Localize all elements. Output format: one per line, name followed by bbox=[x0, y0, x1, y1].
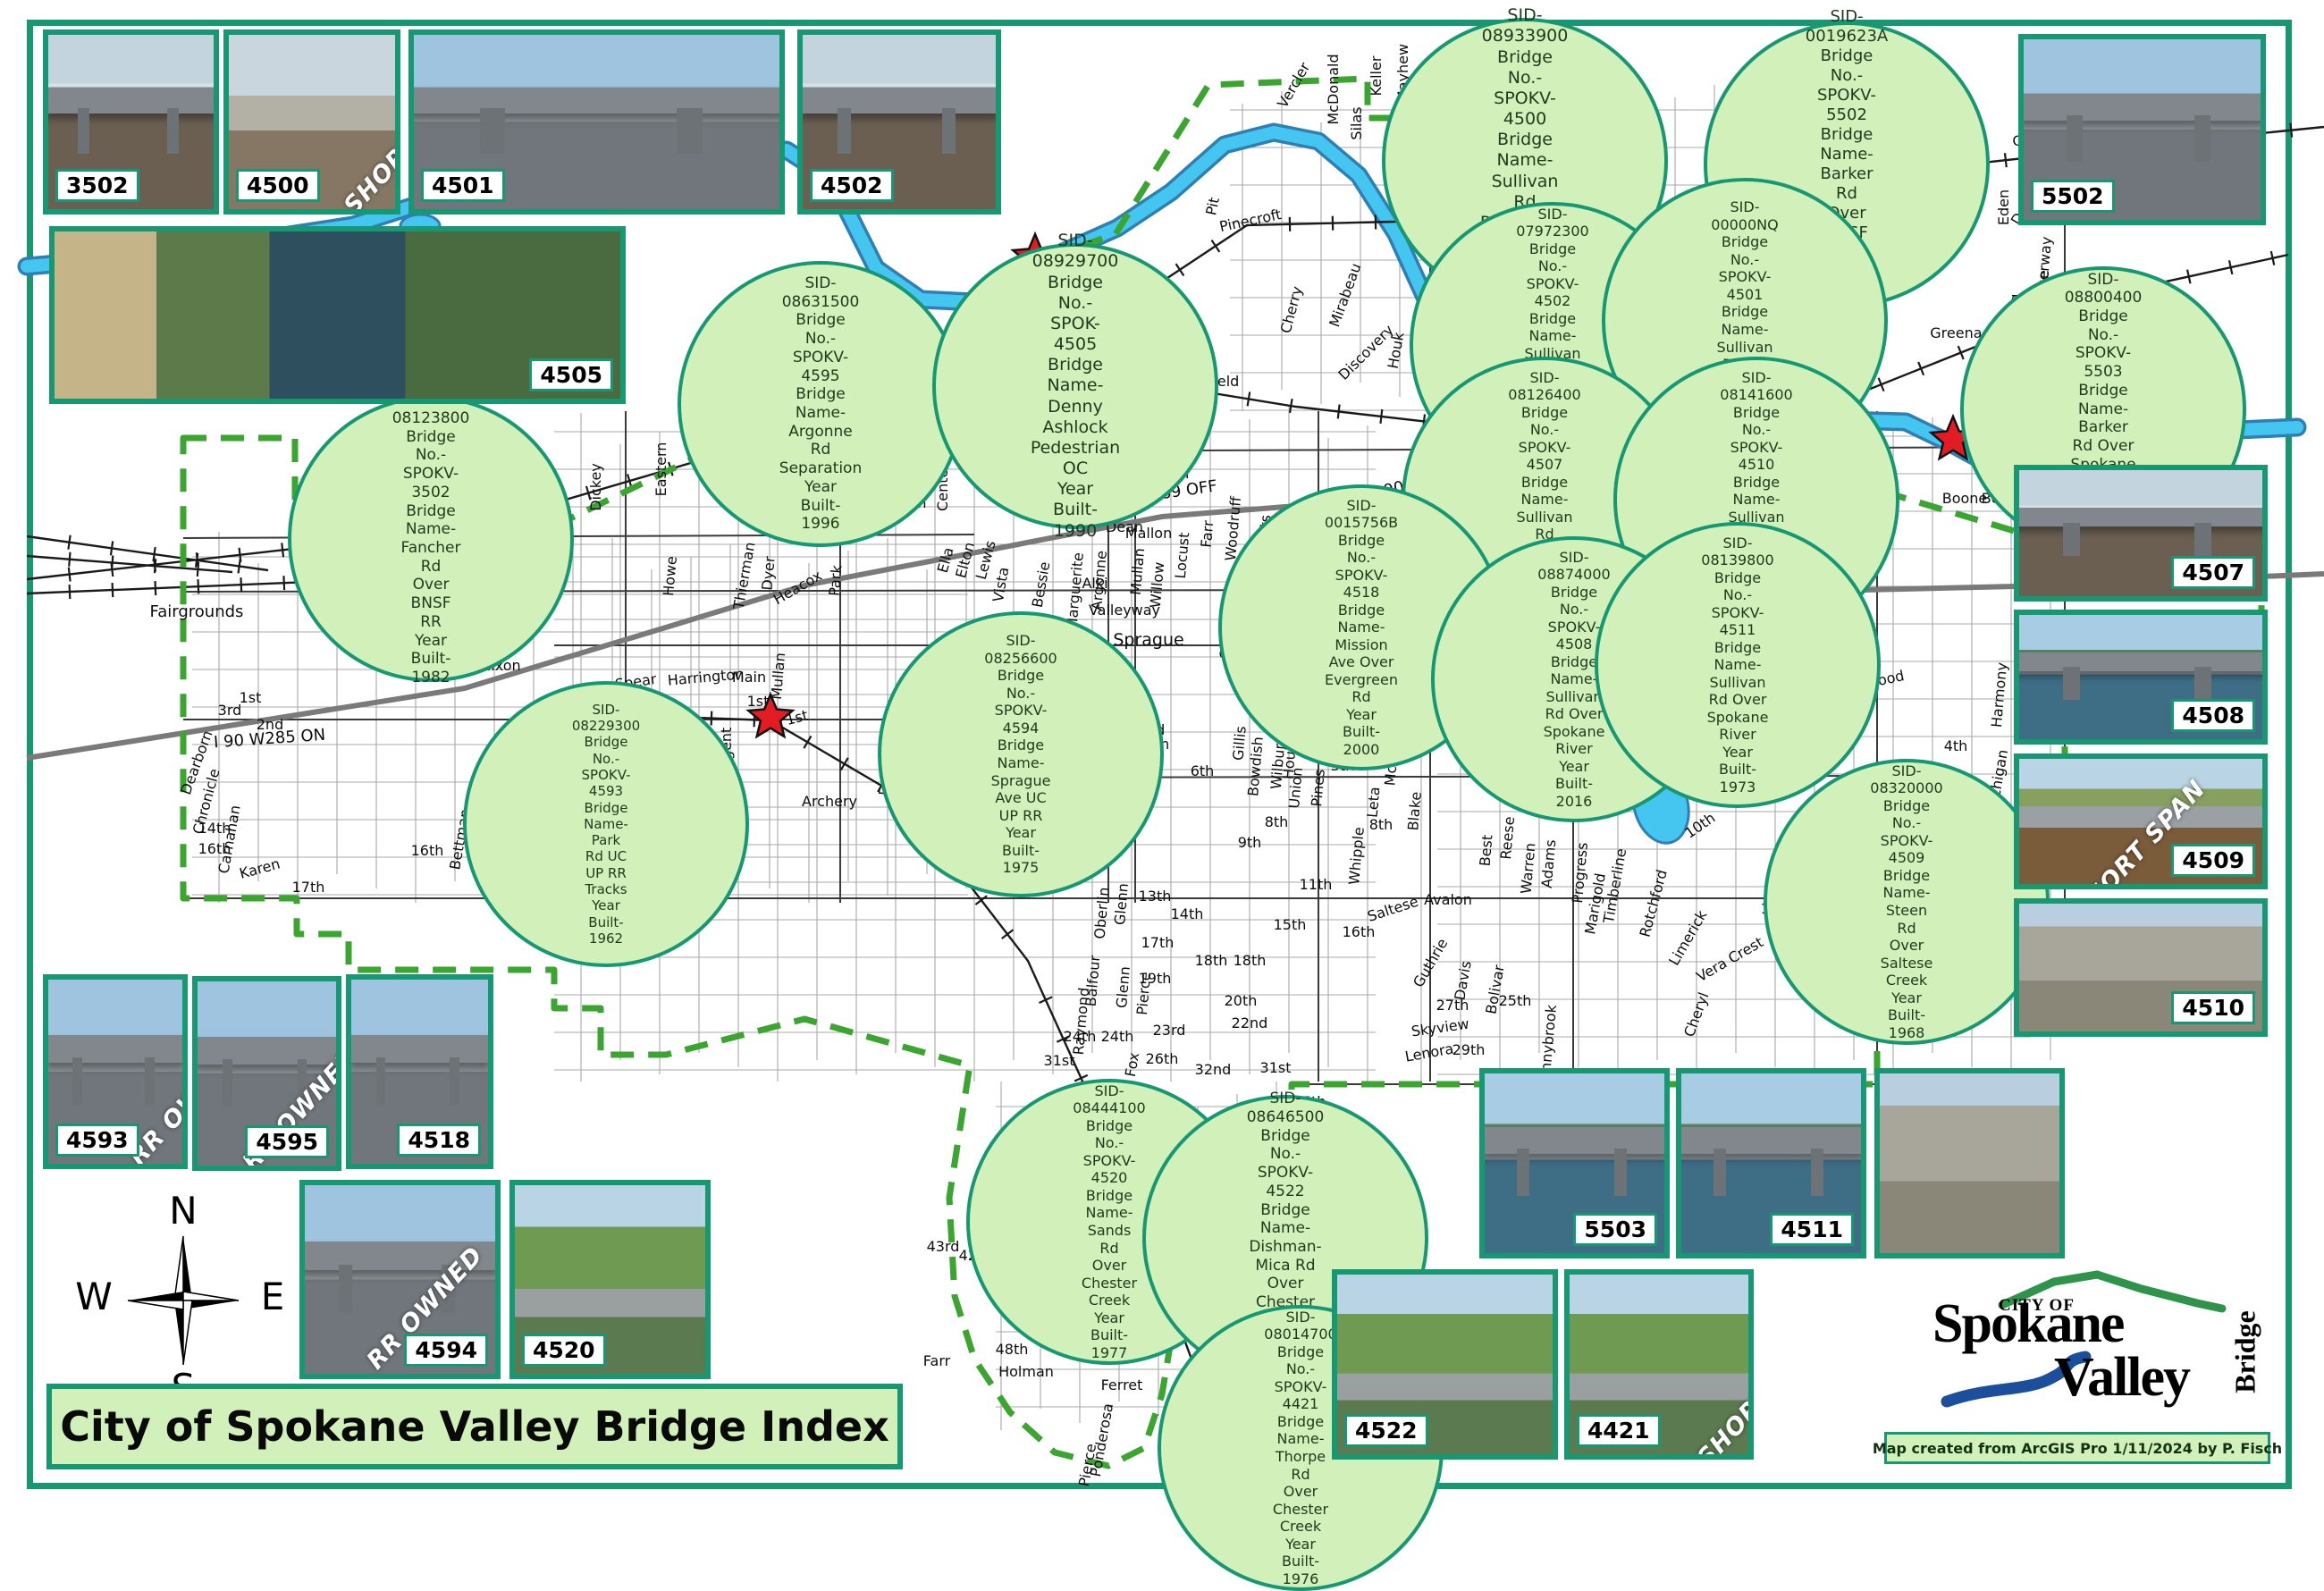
photo-number-label: 4505 bbox=[529, 358, 613, 391]
bridge-pier-graphic bbox=[2194, 667, 2211, 699]
callout-year: Year Built- 1990 bbox=[1053, 479, 1098, 542]
photo-number-label: 4509 bbox=[2171, 844, 2255, 877]
map-credit: Map created from ArcGIS Pro 1/11/2024 by… bbox=[1873, 1440, 2282, 1457]
bridge-pier-graphic bbox=[1811, 1149, 1823, 1195]
callout-sid: SID-08126400 bbox=[1508, 369, 1580, 404]
street-label: Dyer bbox=[758, 555, 778, 591]
photo-number-label: 5502 bbox=[2031, 180, 2115, 213]
street-label: 24th bbox=[1101, 1028, 1134, 1045]
callout-sid: SID-08229300 bbox=[572, 702, 640, 735]
callout-no-prefix: Bridge No.- bbox=[796, 311, 845, 348]
bridge-pier-graphic bbox=[1714, 1149, 1726, 1195]
bridge-span-graphic bbox=[799, 88, 1000, 114]
bridge-photo-4509: SHORT SPAN4509 bbox=[2014, 753, 2268, 889]
photo-number-label: 4518 bbox=[397, 1124, 481, 1157]
bridge-callout-spokv-4509: SID-08320000Bridge No.-SPOKV-4509Bridge … bbox=[1764, 759, 2050, 1045]
street-label: 18th bbox=[1234, 952, 1267, 969]
street-label: Avalon bbox=[1424, 891, 1472, 908]
street-label: Whipple bbox=[1345, 826, 1368, 885]
bridge-pier-graphic bbox=[72, 1057, 82, 1106]
photo-number-label: 4502 bbox=[810, 169, 894, 202]
callout-name: Bridge Name- Steen Rd Over Saltese Creek bbox=[1881, 867, 1933, 989]
street-label: Wilbur bbox=[1267, 743, 1288, 790]
bridge-photo-4507: 4507 bbox=[2014, 465, 2268, 602]
street-label: 14th bbox=[198, 820, 232, 837]
street-label: Boone bbox=[1942, 490, 1988, 507]
logo-valley: Valley bbox=[2054, 1346, 2189, 1410]
bridge-span-graphic bbox=[1481, 1127, 1668, 1154]
bridge-pier-graphic bbox=[480, 108, 506, 154]
callout-sid: SID-08933900 bbox=[1482, 5, 1569, 46]
street-label: Valleyway bbox=[1089, 602, 1160, 619]
callout-name: Bridge Name- Denny Ashlock Pedestrian OC bbox=[1031, 355, 1120, 479]
callout-sid: SID-07972300 bbox=[1516, 206, 1588, 240]
bridge-pier-graphic bbox=[78, 108, 89, 154]
callout-bridge-no: SPOKV-4595 bbox=[793, 349, 848, 385]
street-label: Sprague bbox=[1113, 630, 1183, 650]
bridge-photo-4522: 4522 bbox=[1332, 1269, 1558, 1460]
callout-no-prefix: Bridge No.- bbox=[1260, 1127, 1309, 1164]
bridge-span-graphic bbox=[46, 1035, 185, 1063]
street-label: 29th bbox=[1452, 1041, 1486, 1058]
callout-no-prefix: Bridge No.- bbox=[406, 428, 455, 465]
callout-sid: SID-08800400 bbox=[2065, 271, 2143, 307]
compass-e: E bbox=[261, 1275, 285, 1318]
street-label: 15th bbox=[1274, 916, 1307, 933]
callout-bridge-no: SPOKV-3502 bbox=[403, 465, 459, 501]
street-label: 8th bbox=[1369, 816, 1394, 833]
callout-sid: SID-08141600 bbox=[1720, 369, 1792, 404]
street-label: 43rd bbox=[927, 1238, 960, 1255]
photo-number-label: 4421 bbox=[1577, 1414, 1661, 1447]
bridge-pier-graphic bbox=[167, 108, 179, 154]
callout-name: Bridge Name- Fancher Rd Over BNSF RR bbox=[401, 502, 461, 632]
street-label: Dickey bbox=[587, 463, 604, 511]
street-label: Main bbox=[732, 669, 766, 686]
street-label: 14th bbox=[1171, 905, 1204, 922]
callout-bridge-no: SPOKV-4509 bbox=[1881, 832, 1933, 867]
street-label: Keller bbox=[1368, 55, 1385, 96]
street-label: Balfour bbox=[1082, 955, 1104, 1007]
callout-no-prefix: Bridge No.- bbox=[1722, 233, 1768, 268]
street-label: 18th bbox=[1195, 952, 1228, 969]
street-label: Fairgrounds bbox=[150, 602, 244, 621]
compass-n: N bbox=[169, 1189, 197, 1233]
street-label: Pines bbox=[1308, 769, 1328, 808]
street-label: Cheryl bbox=[1680, 990, 1713, 1040]
photo-number-label: 4593 bbox=[55, 1124, 139, 1157]
bridge-pier-graphic bbox=[942, 108, 956, 154]
bridge-span-graphic bbox=[408, 88, 785, 114]
callout-no-prefix: Bridge No.- bbox=[1086, 1117, 1133, 1152]
street-label: 13th bbox=[1139, 888, 1172, 905]
street-label: 4th bbox=[1944, 737, 1968, 754]
street-label: Archery bbox=[802, 793, 857, 810]
callout-sid: SID-08631500 bbox=[782, 274, 860, 311]
bridge-callout-spokv-4595: SID-08631500Bridge No.-SPOKV-4595Bridge … bbox=[678, 261, 964, 547]
map-title: City of Spokane Valley Bridge Index bbox=[60, 1402, 889, 1451]
callout-year: Year Built- 1977 bbox=[1090, 1309, 1128, 1362]
callout-name: Bridge Name- Sprague Ave UC UP RR bbox=[991, 737, 1051, 824]
bridge-photo-4511: 4511 bbox=[1676, 1068, 1866, 1258]
callout-no-prefix: Bridge No.- bbox=[1883, 797, 1930, 832]
bridge-photo-4520: 4520 bbox=[509, 1180, 711, 1379]
callout-sid: SID-0019623A bbox=[1806, 7, 1888, 46]
street-label: McDonald bbox=[1325, 54, 1342, 124]
bridge-photo-4501: 4501 bbox=[408, 29, 785, 215]
callout-name: Bridge Name- Mission Ave Over Evergreen … bbox=[1325, 602, 1398, 706]
bridge-photo-4502: 4502 bbox=[797, 29, 1001, 215]
callout-year: Year Built- 2016 bbox=[1555, 758, 1593, 811]
street-label: Reese bbox=[1497, 816, 1518, 861]
city-logo: CITY OF Spokane Valley Bridge bbox=[1920, 1267, 2274, 1428]
photo-number-label: 3502 bbox=[55, 169, 139, 202]
callout-name: Bridge Name- Sullivan Rd Over Spokane Ri… bbox=[1707, 639, 1769, 744]
short-span-watermark: SHORT SPAN bbox=[339, 69, 400, 215]
callout-bridge-no: SPOKV-4518 bbox=[1335, 567, 1388, 602]
street-label: Harmony bbox=[1988, 661, 2010, 728]
bridge-callout-spokv-3502: SID-08123800Bridge No.-SPOKV-3502Bridge … bbox=[288, 396, 574, 682]
photo-number-label: 4500 bbox=[236, 169, 320, 202]
street-label: Glenn bbox=[1113, 965, 1133, 1008]
street-label: Holman bbox=[998, 1363, 1054, 1380]
callout-sid: SID-08320000 bbox=[1870, 762, 1942, 797]
street-label: 25th bbox=[1499, 992, 1532, 1009]
street-label: Rotchford bbox=[1637, 868, 1671, 939]
street-label: Alki bbox=[1082, 575, 1107, 592]
callout-sid: SID-08929700 bbox=[1032, 231, 1119, 272]
street-label: Karen bbox=[238, 855, 282, 882]
street-label: Skyview bbox=[1410, 1015, 1470, 1040]
bridge-callout-spok-4505: SID-08929700Bridge No.-SPOK-4505Bridge N… bbox=[932, 243, 1218, 529]
bridge-callout-spokv-4511: SID-08139800Bridge No.-SPOKV-4511Bridge … bbox=[1595, 522, 1881, 808]
street-label: Pierce bbox=[1133, 972, 1154, 1016]
street-label: 17th bbox=[1141, 934, 1175, 951]
callout-no-prefix: Bridge No.- bbox=[2078, 307, 2127, 344]
callout-bridge-no: SPOKV-4500 bbox=[1494, 88, 1556, 130]
street-label: 23rd bbox=[1153, 1022, 1186, 1039]
photo-number-label: 4595 bbox=[245, 1125, 329, 1158]
callout-bridge-no: SPOKV-4511 bbox=[1712, 604, 1764, 639]
bridge-pier-graphic bbox=[1517, 1149, 1529, 1195]
callout-sid: SID-00000NQ bbox=[1711, 198, 1778, 233]
photo-number-label: 4508 bbox=[2171, 699, 2255, 732]
callout-no-prefix: Bridge No.- bbox=[1551, 584, 1597, 619]
bridge-span-graphic bbox=[349, 1035, 491, 1063]
bridge-span-graphic bbox=[2015, 652, 2268, 671]
bridge-pier-graphic bbox=[2194, 523, 2211, 556]
callout-sid: SID-0015756B bbox=[1325, 497, 1398, 532]
bridge-pier-graphic bbox=[1614, 1149, 1627, 1195]
street-label: Pierce bbox=[1075, 1443, 1099, 1488]
map-title-box: City of Spokane Valley Bridge Index bbox=[46, 1384, 903, 1469]
street-label: 1st bbox=[240, 689, 262, 706]
callout-year: Year Built- 1996 bbox=[801, 478, 841, 534]
callout-bridge-no: SPOKV-4502 bbox=[1527, 275, 1579, 310]
bridge-span-graphic bbox=[1678, 1127, 1865, 1154]
street-label: Cherry bbox=[1277, 284, 1306, 335]
street-label: 26th bbox=[1146, 1050, 1179, 1067]
photo-number-label: 4510 bbox=[2171, 991, 2255, 1024]
callout-no-prefix: Bridge No.- bbox=[1048, 273, 1103, 314]
bridge-pier-graphic bbox=[2063, 667, 2080, 699]
callout-year: Year Built- 1976 bbox=[1282, 1536, 1319, 1588]
callout-no-prefix: Bridge No.- bbox=[585, 734, 628, 767]
bridge-pier-graphic bbox=[339, 1265, 352, 1314]
street-label: Mullan bbox=[1127, 547, 1149, 595]
bridge-pier-graphic bbox=[376, 1057, 386, 1106]
street-label: Farr bbox=[1198, 519, 1217, 548]
street-label: 31st bbox=[1260, 1059, 1292, 1076]
bridge-photo-4421: SHORT SPAN4421 bbox=[1564, 1269, 1754, 1460]
callout-bridge-no: SPOKV-4522 bbox=[1258, 1164, 1313, 1200]
callout-sid: SID-08256600 bbox=[984, 632, 1057, 667]
callout-year: Year Built- 1973 bbox=[1719, 744, 1756, 796]
callout-no-prefix: Bridge No.- bbox=[1338, 532, 1385, 567]
bridge-photo-5502: 5502 bbox=[2018, 34, 2266, 225]
callout-name: Bridge Name- Thorpe Rd Over Chester Cree… bbox=[1273, 1413, 1328, 1536]
photo-number-label: 5503 bbox=[1573, 1213, 1657, 1246]
street-label: Blake bbox=[1404, 791, 1425, 831]
callout-no-prefix: Bridge No.- bbox=[1497, 47, 1553, 88]
street-label: Park bbox=[826, 564, 846, 597]
callout-no-prefix: Bridge No.- bbox=[998, 667, 1044, 702]
bridge-photo-3502: 3502 bbox=[43, 29, 219, 215]
short-span-watermark: SHORT SPAN bbox=[1692, 1320, 1754, 1460]
photo-number-label: 4501 bbox=[421, 169, 505, 202]
callout-bridge-no: SPOKV-4421 bbox=[1275, 1378, 1327, 1413]
callout-no-prefix: Bridge No.- bbox=[1821, 46, 1874, 86]
street-label: Eastern bbox=[653, 442, 669, 497]
bridge-photo-4595: RR OWNED4595 bbox=[192, 976, 341, 1171]
callout-sid: SID-08874000 bbox=[1537, 549, 1610, 584]
street-label: 32nd bbox=[1195, 1061, 1232, 1078]
street-label: 16th bbox=[1343, 923, 1376, 940]
photo-number-label: 4507 bbox=[2171, 556, 2255, 589]
street-label: Bessie bbox=[1029, 560, 1054, 609]
callout-no-prefix: Bridge No.- bbox=[1521, 404, 1568, 439]
street-label: 6th bbox=[1191, 762, 1215, 779]
street-label: 17th bbox=[292, 879, 325, 896]
bridge-photo-detail bbox=[1874, 1068, 2065, 1258]
callout-year: Year Built- 1975 bbox=[1002, 824, 1040, 877]
bridge-photo-5503: 5503 bbox=[1479, 1068, 1670, 1258]
bridge-pier-graphic bbox=[838, 108, 851, 154]
callout-no-prefix: Bridge No.- bbox=[1714, 569, 1761, 604]
bridge-photo-4594: RR OWNED4594 bbox=[299, 1180, 501, 1379]
street-label: Mallon bbox=[1125, 525, 1172, 542]
bridge-callout-spokv-4593: SID-08229300Bridge No.-SPOKV-4593Bridge … bbox=[463, 681, 749, 967]
bridge-span-graphic bbox=[2015, 508, 2268, 526]
callout-name: Bridge Name- Sands Rd Over Chester Creek bbox=[1082, 1187, 1137, 1309]
street-label: Vera Crest bbox=[1694, 933, 1766, 985]
bridge-pier-graphic bbox=[2194, 115, 2211, 163]
bridge-pier-graphic bbox=[2067, 115, 2084, 163]
street-label: Union bbox=[1285, 767, 1306, 810]
bridge-pier-graphic bbox=[223, 1059, 232, 1107]
bridge-pier-graphic bbox=[450, 1057, 459, 1106]
callout-year: Year Built- 2000 bbox=[1343, 706, 1380, 759]
bridge-span-graphic bbox=[195, 1037, 339, 1065]
street-label: 11th bbox=[1300, 876, 1333, 893]
callout-bridge-no: SPOKV-4593 bbox=[582, 767, 631, 800]
street-label: Gillis bbox=[1229, 726, 1249, 762]
street-label: Locust bbox=[1172, 532, 1192, 579]
callout-name: Bridge Name- Argonne Rd Separation bbox=[779, 385, 862, 478]
street-label: 8th bbox=[1265, 813, 1289, 830]
street-label: Vista bbox=[989, 566, 1013, 603]
callout-bridge-no: SPOKV-4594 bbox=[995, 702, 1048, 737]
bridge-photo-4593: RR OWNED4593 bbox=[43, 974, 188, 1169]
callout-year: Year Built- 1968 bbox=[1888, 989, 1925, 1042]
bridge-photo-4500: SHORT SPAN4500 bbox=[223, 29, 400, 215]
street-label: 22nd bbox=[1232, 1014, 1268, 1031]
bridge-span-graphic bbox=[45, 88, 216, 114]
bridge-photo-4518: 4518 bbox=[346, 974, 493, 1169]
street-label: 3rd bbox=[218, 702, 242, 719]
callout-bridge-no: SPOK-4505 bbox=[1050, 314, 1100, 355]
callout-bridge-no: SPOKV-4508 bbox=[1548, 619, 1601, 653]
callout-year: Year Built- 1962 bbox=[588, 897, 623, 947]
bridge-callout-spokv-4594: SID-08256600Bridge No.-SPOKV-4594Bridge … bbox=[878, 611, 1164, 897]
bridge-photo-4510: 4510 bbox=[2014, 898, 2268, 1037]
street-label: 16th bbox=[411, 842, 444, 859]
bridge-pier-graphic bbox=[2063, 523, 2080, 556]
street-label: 27th bbox=[1436, 997, 1469, 1014]
street-label: 16th bbox=[198, 840, 232, 857]
bridge-pier-graphic bbox=[145, 1057, 155, 1106]
street-label: Mirabeau bbox=[1326, 261, 1364, 330]
callout-bridge-no: SPOKV-4501 bbox=[1719, 268, 1772, 303]
callout-no-prefix: Bridge No.- bbox=[1733, 404, 1780, 439]
callout-year: Year Built- 1982 bbox=[411, 632, 451, 687]
street-label: 9th bbox=[1238, 834, 1262, 851]
street-label: Pit bbox=[1202, 196, 1223, 217]
bridge-photo-4505: 4505 bbox=[49, 226, 626, 404]
callout-sid: SID-08139800 bbox=[1701, 535, 1773, 569]
callout-sid: SID-08444100 bbox=[1073, 1082, 1145, 1117]
bridge-pier-graphic bbox=[677, 108, 703, 154]
street-label: Davis bbox=[1451, 960, 1474, 1002]
street-label: Farr bbox=[923, 1352, 951, 1369]
street-label: 20th bbox=[1225, 992, 1258, 1009]
street-label: 48th bbox=[996, 1341, 1029, 1358]
street-label: I 90 W285 ON bbox=[213, 726, 325, 753]
bridge-photo-4508: 4508 bbox=[2014, 610, 2268, 745]
callout-name: Bridge Name- Park Rd UC UP RR Tracks bbox=[584, 800, 628, 898]
callout-bridge-no: SPOKV-4520 bbox=[1083, 1152, 1136, 1187]
callout-bridge-no: SPOKV-4510 bbox=[1730, 439, 1783, 474]
street-label: Adams bbox=[1538, 839, 1560, 889]
photo-number-label: 4511 bbox=[1770, 1213, 1854, 1246]
street-label: Leta bbox=[1364, 786, 1384, 818]
street-label: Silas bbox=[1348, 106, 1365, 139]
compass-rose: NESW bbox=[75, 1189, 284, 1410]
callout-bridge-no: SPOKV-4507 bbox=[1519, 439, 1571, 474]
callout-no-prefix: Bridge No.- bbox=[1277, 1343, 1324, 1378]
bridge-span-graphic bbox=[2019, 94, 2266, 121]
street-label: Fox bbox=[1122, 1051, 1142, 1078]
street-label: Best bbox=[1477, 834, 1496, 867]
callout-no-prefix: Bridge No.- bbox=[1529, 240, 1576, 275]
street-label: Limerick bbox=[1665, 906, 1711, 968]
photo-number-label: 4522 bbox=[1344, 1414, 1428, 1447]
street-label: Ferret bbox=[1101, 1376, 1143, 1393]
photo-number-label: 4594 bbox=[404, 1334, 488, 1367]
callout-bridge-no: SPOKV-5503 bbox=[2076, 344, 2131, 381]
photo-number-label: 4520 bbox=[522, 1334, 606, 1367]
callout-sid: SID-08014700 bbox=[1264, 1309, 1336, 1343]
street-label: Pinecroft bbox=[1218, 206, 1284, 235]
logo-bridge-vertical: Bridge bbox=[2228, 1310, 2261, 1393]
street-label: Oberlin bbox=[1091, 887, 1113, 940]
callout-sid: SID-08646500 bbox=[1247, 1090, 1325, 1126]
compass-w: W bbox=[75, 1275, 113, 1318]
map-credit-box: Map created from ArcGIS Pro 1/11/2024 by… bbox=[1884, 1432, 2270, 1464]
street-label: Howe bbox=[660, 555, 680, 596]
callout-bridge-no: SPOKV-5502 bbox=[1817, 86, 1876, 125]
